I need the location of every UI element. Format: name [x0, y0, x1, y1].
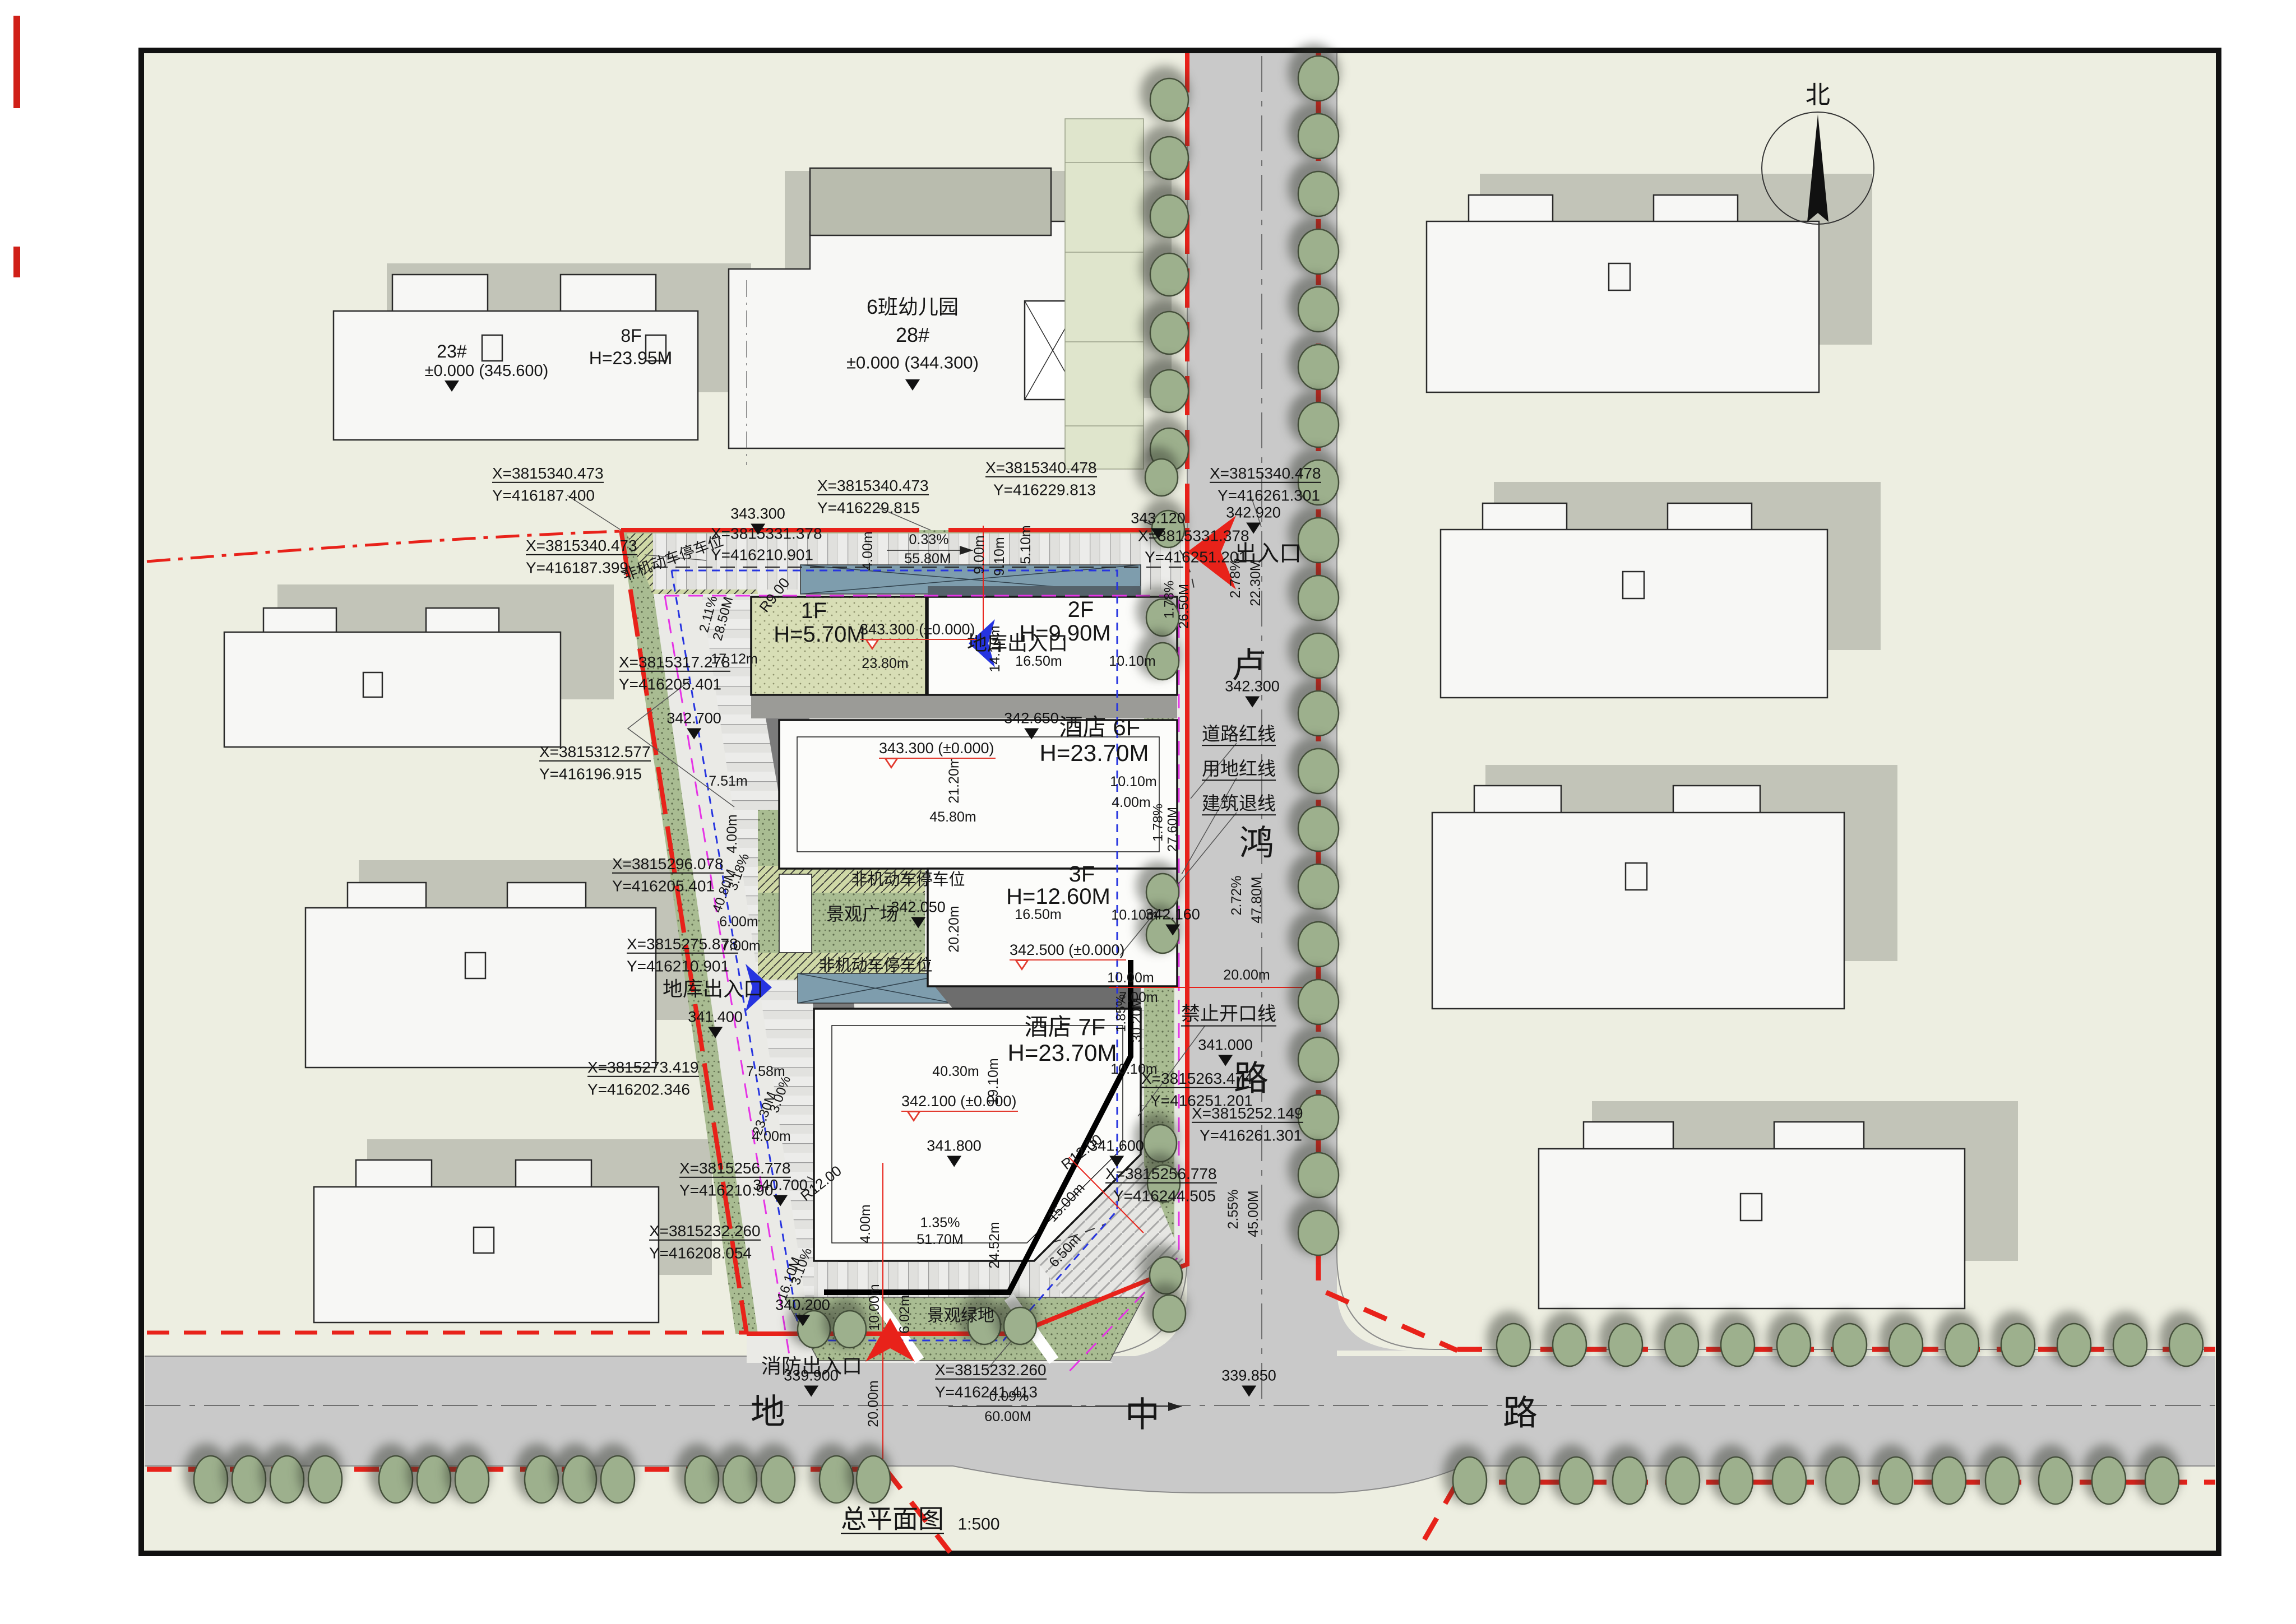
tree	[1932, 1457, 1966, 1504]
tree	[1665, 1324, 1698, 1366]
tree	[723, 1456, 757, 1503]
tree	[1298, 749, 1339, 794]
tree	[194, 1456, 228, 1503]
tree	[2001, 1324, 2035, 1366]
tree	[1298, 1210, 1339, 1255]
tree	[308, 1456, 342, 1503]
tree	[1298, 229, 1339, 274]
tree	[1146, 916, 1179, 953]
tree	[1506, 1457, 1540, 1504]
tree	[1298, 691, 1339, 736]
tree	[1453, 1457, 1487, 1504]
tree	[1150, 195, 1188, 238]
tree	[1985, 1457, 2019, 1504]
building-1f	[751, 597, 926, 695]
tree	[761, 1456, 795, 1503]
tree	[1879, 1457, 1913, 1504]
tree	[1298, 56, 1339, 101]
tree	[1721, 1324, 1755, 1366]
tree	[2057, 1324, 2091, 1366]
tree	[1150, 78, 1188, 121]
building-23	[334, 311, 698, 440]
tree	[1152, 511, 1184, 547]
tree	[563, 1456, 596, 1503]
tree	[2169, 1324, 2203, 1366]
tree	[1298, 980, 1339, 1024]
tree	[1298, 402, 1339, 447]
tree	[1613, 1457, 1646, 1504]
tree	[455, 1456, 489, 1503]
tree	[1777, 1324, 1811, 1366]
tree	[1145, 459, 1178, 496]
tree	[1559, 1457, 1593, 1504]
tree	[857, 1456, 890, 1503]
tree	[1298, 1095, 1339, 1140]
tree	[1298, 114, 1339, 159]
tree	[1298, 460, 1339, 505]
tree	[1150, 137, 1188, 179]
tree	[1298, 345, 1339, 389]
tree	[1298, 518, 1339, 563]
tree	[1298, 922, 1339, 967]
tree	[1298, 633, 1339, 678]
tree	[2145, 1457, 2179, 1504]
tree	[1666, 1457, 1700, 1504]
tree	[1298, 171, 1339, 216]
tree	[1146, 599, 1179, 636]
tree	[1553, 1324, 1586, 1366]
tree	[270, 1456, 304, 1503]
tree	[1609, 1324, 1642, 1366]
tree	[1150, 370, 1188, 412]
tree	[1298, 1037, 1339, 1082]
building-hotel-6f	[779, 720, 1177, 869]
site-plan-sheet: X=3815340.473Y=416187.400X=3815340.473Y=…	[0, 0, 2296, 1624]
tree	[1833, 1324, 1867, 1366]
tree	[1497, 1324, 1530, 1366]
tree	[1298, 576, 1339, 620]
tree	[2092, 1457, 2126, 1504]
tree	[1150, 312, 1188, 354]
tree	[2039, 1457, 2072, 1504]
tree	[1153, 1295, 1186, 1332]
tree	[1298, 864, 1339, 909]
tree	[1298, 1153, 1339, 1198]
tree	[685, 1456, 719, 1503]
tree	[379, 1456, 413, 1503]
tree	[1147, 1165, 1180, 1202]
tree	[1146, 643, 1179, 680]
tree	[2113, 1324, 2147, 1366]
tree	[417, 1456, 451, 1503]
tree	[1150, 253, 1188, 296]
tree	[1826, 1457, 1859, 1504]
tree	[1889, 1324, 1923, 1366]
tree	[1945, 1324, 1979, 1366]
tree	[1004, 1307, 1036, 1344]
tree	[601, 1456, 635, 1503]
tree	[525, 1456, 558, 1503]
tree	[1298, 806, 1339, 851]
tree	[1298, 287, 1339, 332]
site-plan-drawing	[0, 0, 2296, 1624]
tree	[1719, 1457, 1753, 1504]
tree	[232, 1456, 266, 1503]
tree	[834, 1311, 866, 1348]
tree	[1772, 1457, 1806, 1504]
